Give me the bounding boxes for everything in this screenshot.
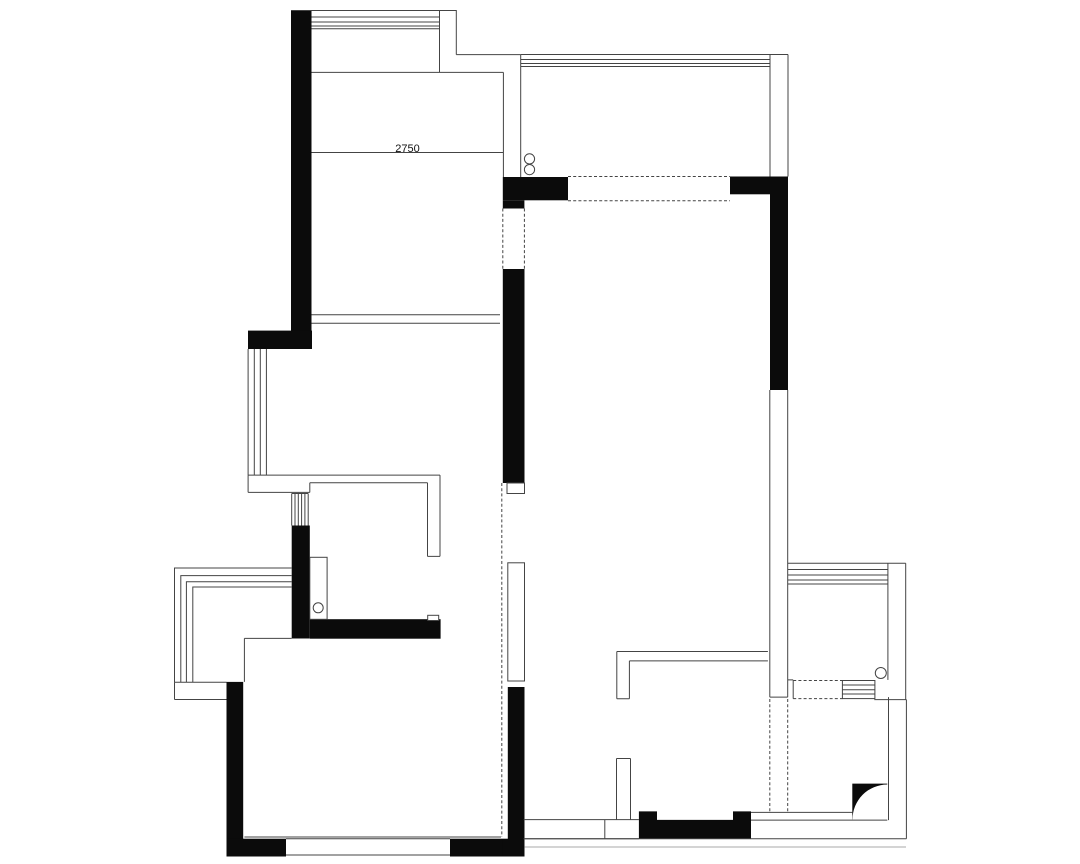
svg-text:2750: 2750 [395, 143, 419, 155]
